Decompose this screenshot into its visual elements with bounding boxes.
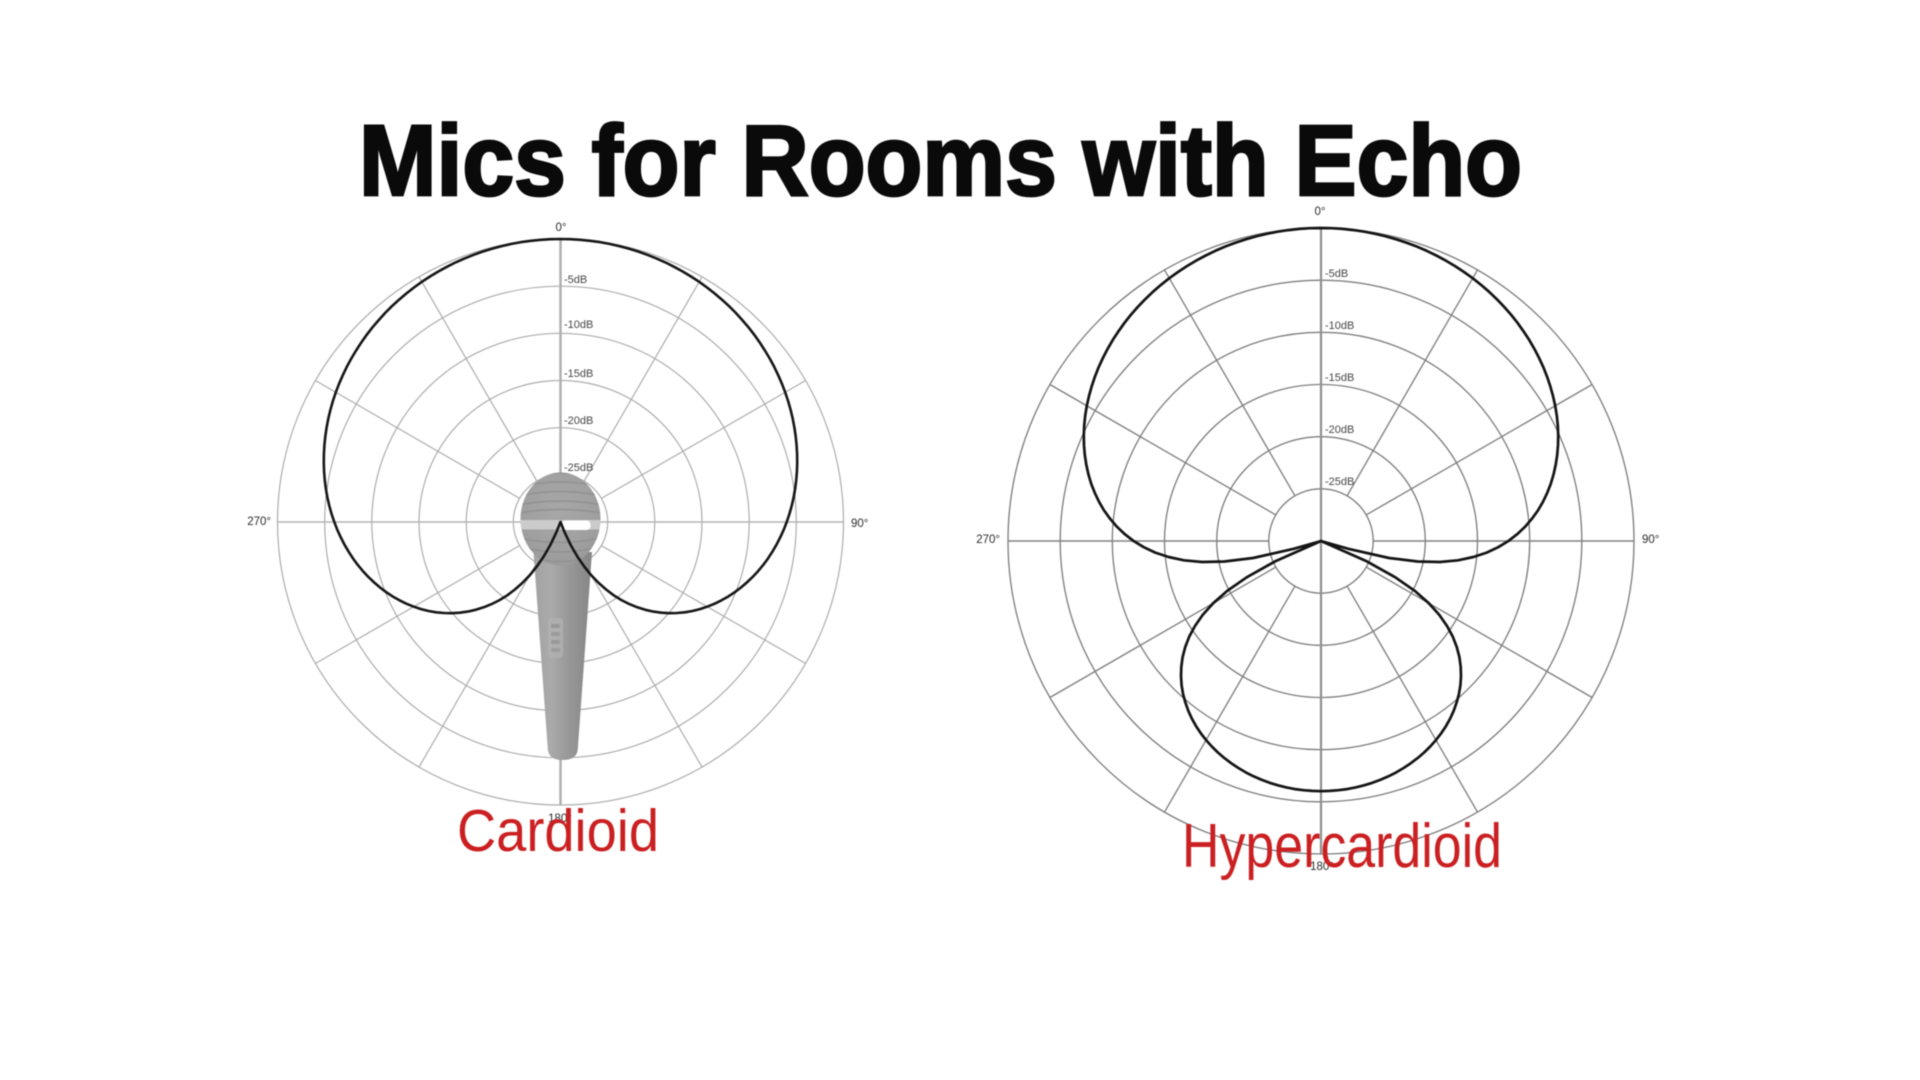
svg-text:-15dB: -15dB [1325,372,1354,384]
svg-text:-5dB: -5dB [1325,268,1348,280]
svg-text:0°: 0° [1315,206,1326,218]
svg-text:Cardioid: Cardioid [457,798,659,864]
svg-text:0°: 0° [556,222,567,234]
svg-text:-20dB: -20dB [1325,424,1354,436]
svg-text:Mics for Rooms with Echo: Mics for Rooms with Echo [359,105,1522,217]
svg-text:-5dB: -5dB [564,274,587,286]
svg-text:-10dB: -10dB [564,319,593,331]
svg-text:-20dB: -20dB [564,415,593,427]
svg-text:-15dB: -15dB [564,368,593,380]
svg-text:-25dB: -25dB [1325,476,1354,488]
svg-text:-25dB: -25dB [564,462,593,474]
svg-text:-10dB: -10dB [1325,320,1354,332]
svg-text:270°: 270° [247,516,271,528]
svg-text:Hypercardioid: Hypercardioid [1182,812,1502,881]
svg-text:270°: 270° [976,534,1000,546]
svg-text:90°: 90° [1642,534,1659,546]
svg-text:90°: 90° [851,518,868,530]
